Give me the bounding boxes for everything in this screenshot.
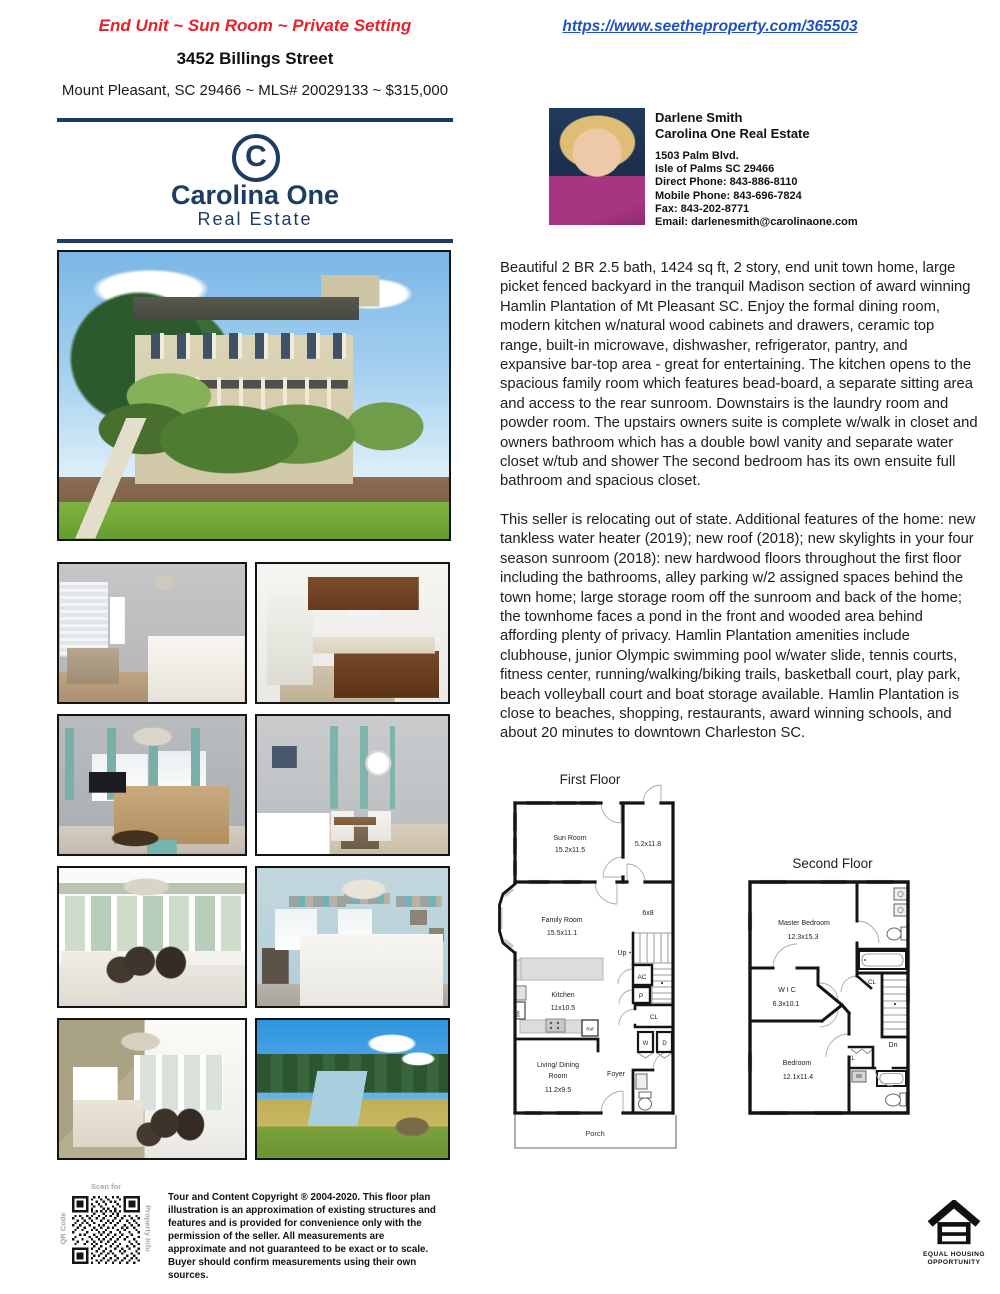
agent-address-line1: 1503 Palm Blvd.: [655, 150, 858, 163]
equal-housing-logo: EQUAL HOUSING OPPORTUNITY: [916, 1200, 992, 1267]
brand-subname: Real Estate: [57, 209, 453, 230]
photo-kitchen: [255, 562, 450, 704]
equal-housing-line2: OPPORTUNITY: [916, 1259, 992, 1267]
property-tagline: End Unit ~ Sun Room ~ Private Setting: [40, 16, 470, 36]
agent-email: Email: darlenesmith@carolinaone.com: [655, 216, 858, 229]
property-address: 3452 Billings Street: [40, 49, 470, 69]
photo-sunroom: [57, 866, 247, 1008]
photo-bedroom: [255, 866, 450, 1008]
equal-housing-line1: EQUAL HOUSING: [916, 1251, 992, 1259]
family-room-dim: 15.5x11.1: [547, 930, 577, 937]
ac-label: AC: [637, 974, 646, 981]
first-floor-plan: Sun Room 15.2x11.5 5.2x11.8 Family Room …: [495, 783, 685, 1155]
dryer-label: D: [662, 1041, 667, 1047]
dishwasher-label: DW: [516, 1010, 521, 1017]
sun-room-label: Sun Room: [553, 835, 586, 842]
refrigerator-label: Ref: [586, 1027, 594, 1032]
photo-pond-view: [255, 1018, 450, 1160]
agent-address-line2: Isle of Palms SC 29466: [655, 163, 858, 176]
bedroom-label: Bedroom: [783, 1060, 812, 1067]
sun-room-dim: 15.2x11.5: [555, 847, 585, 854]
agent-name: Darlene Smith: [655, 110, 742, 125]
living-label-1: Living/ Dining: [537, 1062, 579, 1069]
closet-lower-label: CL: [847, 1056, 855, 1062]
living-dim: 11.2x9.5: [545, 1087, 571, 1094]
closet-label: CL: [650, 1014, 659, 1021]
storage-dim: 5.2x11.8: [635, 841, 661, 848]
agent-contact-block: 1503 Palm Blvd. Isle of Palms SC 29466 D…: [655, 150, 858, 229]
circle-c-icon: C: [232, 134, 280, 182]
second-floor-plan: Master Bedroom 12.3x15.3 W I C 6.3x10.1 …: [745, 877, 920, 1117]
copyright-disclaimer: Tour and Content Copyright ® 2004-2020. …: [168, 1191, 440, 1282]
qr-caption-right: Property Info: [144, 1199, 153, 1259]
photo-dining-nook: [255, 714, 450, 856]
equal-housing-house-icon: [926, 1200, 982, 1246]
qr-caption-left: QR Code: [59, 1199, 68, 1259]
kitchen-label: Kitchen: [551, 992, 574, 999]
photo-sitting-room: [57, 562, 247, 704]
agent-direct-phone: Direct Phone: 843-886-8110: [655, 176, 858, 189]
closet-upper-label: CL: [868, 980, 876, 986]
living-label-2: Room: [549, 1073, 568, 1080]
description-paragraph-2: This seller is relocating out of state. …: [500, 511, 978, 744]
photo-exterior-front: [57, 250, 451, 541]
second-floor-title: Second Floor: [745, 856, 920, 871]
kitchen-dim: 11x10.5: [551, 1005, 575, 1012]
qr-code: [72, 1196, 140, 1264]
property-description: Beautiful 2 BR 2.5 bath, 1424 sq ft, 2 s…: [500, 259, 978, 763]
property-mls-price: Mount Pleasant, SC 29466 ~ MLS# 20029133…: [40, 82, 470, 99]
wic-label: W I C: [778, 987, 796, 994]
photo-sunroom-seating: [57, 1018, 247, 1160]
flyer-page: End Unit ~ Sun Room ~ Private Setting ht…: [0, 0, 1000, 1294]
washer-label: W: [643, 1041, 649, 1047]
qr-caption-top: Scan for: [72, 1182, 140, 1191]
brand-name: Carolina One: [57, 180, 453, 211]
agent-fax: Fax: 843-202-8771: [655, 203, 858, 216]
porch-label: Porch: [585, 1129, 605, 1138]
pantry-label: P: [639, 993, 643, 1000]
agent-photo: [549, 108, 645, 225]
brand-logo: C Carolina One Real Estate: [57, 118, 453, 243]
master-bedroom-dim: 12.3x15.3: [788, 934, 819, 941]
family-room-label: Family Room: [541, 917, 582, 924]
property-tour-link[interactable]: https://www.seetheproperty.com/365503: [500, 18, 920, 36]
bedroom-dim: 12.1x11.4: [783, 1074, 813, 1081]
hall-dim: 6x8: [642, 910, 653, 917]
photo-family-room: [57, 714, 247, 856]
up-label: Up: [618, 950, 627, 957]
down-label: Dn: [889, 1042, 898, 1049]
fixtures: [852, 888, 908, 1106]
description-paragraph-1: Beautiful 2 BR 2.5 bath, 1424 sq ft, 2 s…: [500, 259, 978, 492]
agent-mobile-phone: Mobile Phone: 843-696-7824: [655, 190, 858, 203]
master-bedroom-label: Master Bedroom: [778, 920, 830, 927]
foyer-label: Foyer: [607, 1071, 626, 1078]
agent-company: Carolina One Real Estate: [655, 126, 810, 141]
wic-dim: 6.3x10.1: [773, 1001, 800, 1008]
